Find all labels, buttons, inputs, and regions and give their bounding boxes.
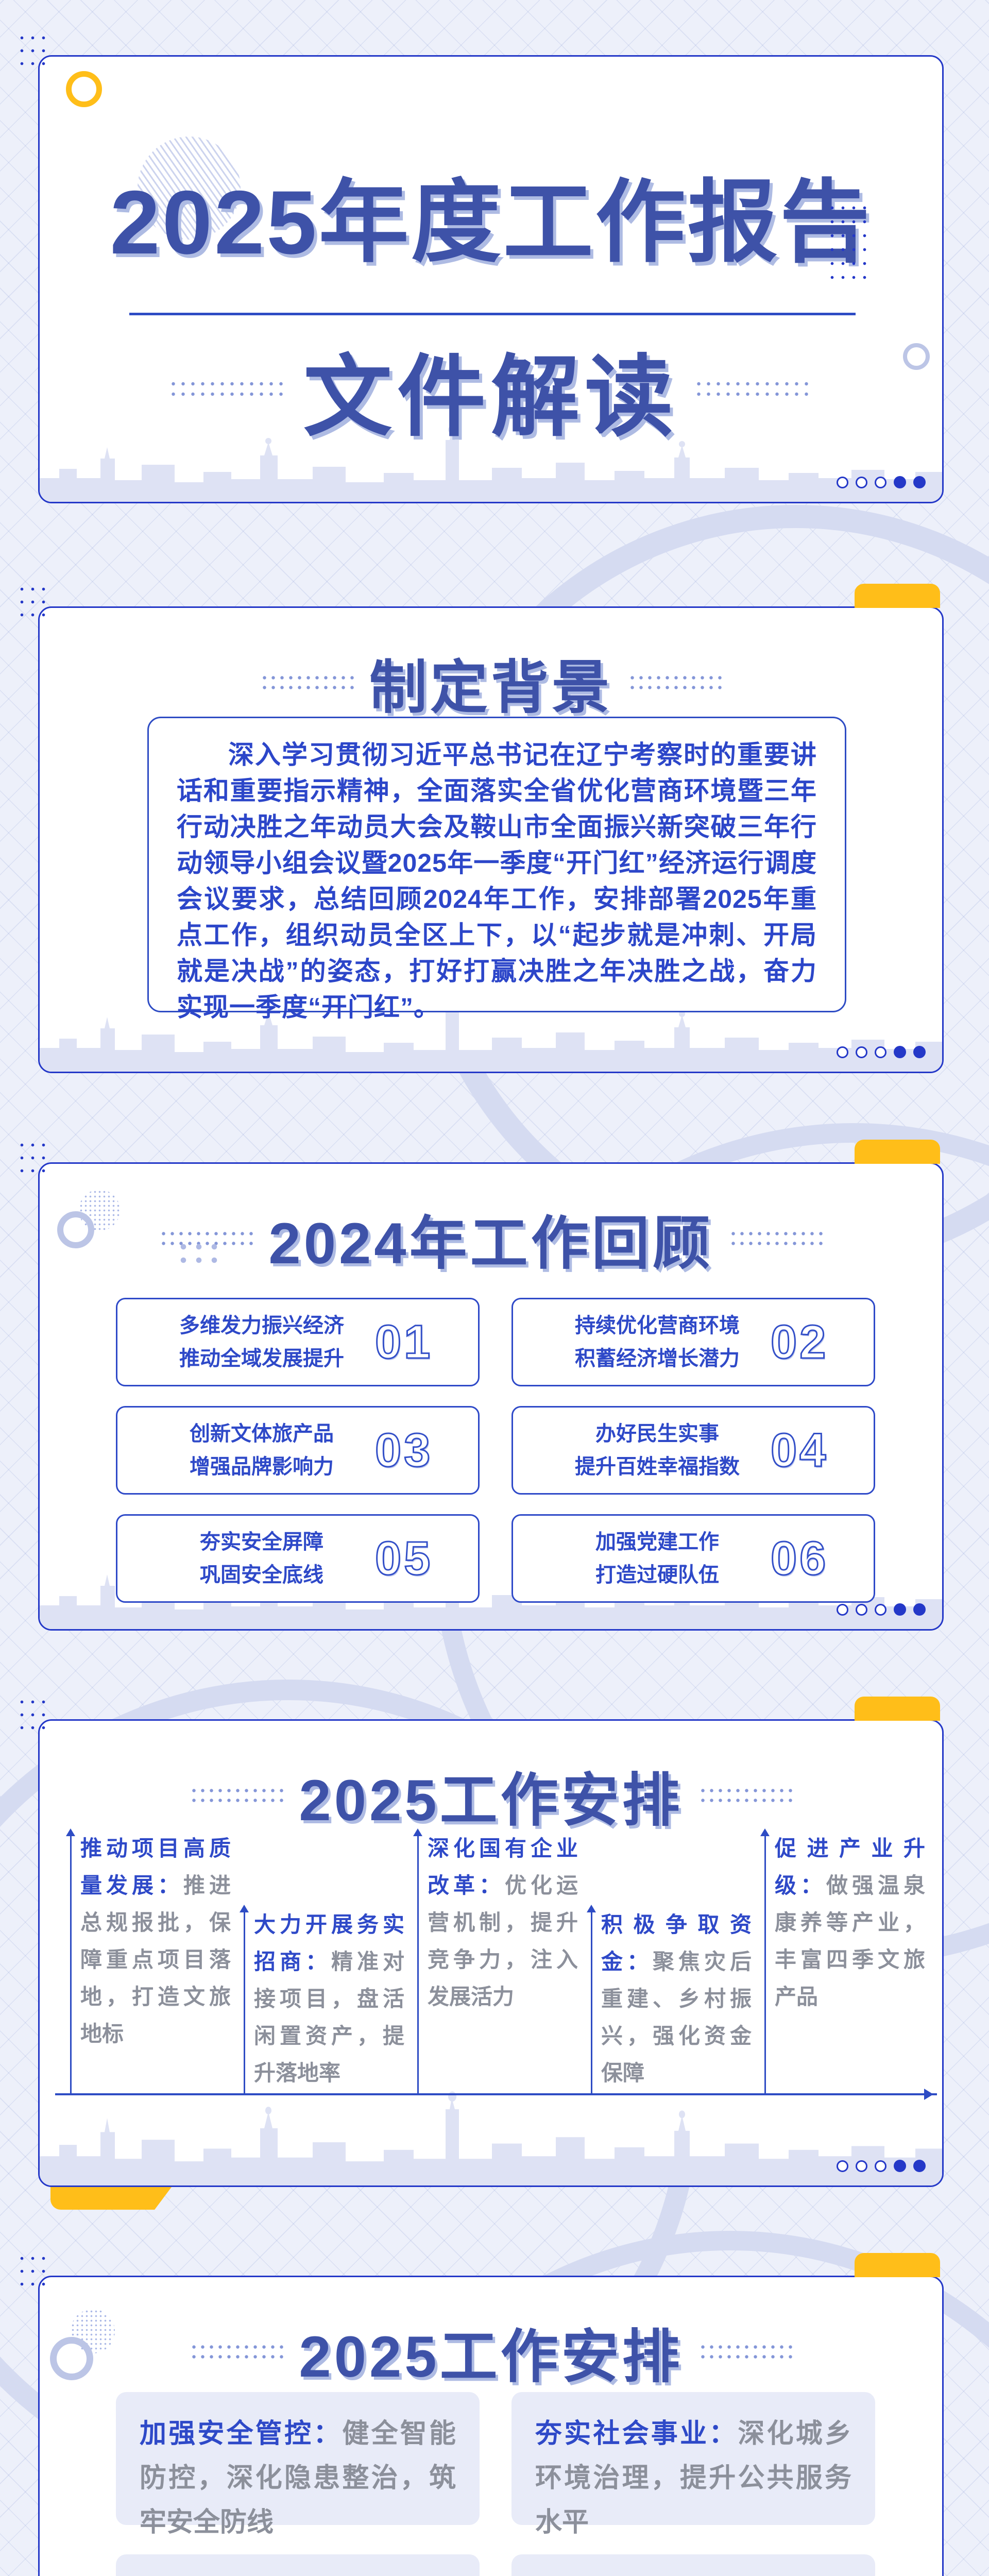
dots-decoration [260,673,354,692]
yellow-tab-decoration [855,1697,940,1721]
review-item: 多维发力振兴经济推动全域发展提升 01 [116,1298,480,1386]
corner-dots-decoration [15,2251,50,2292]
section-title: 2025工作安排 [299,2310,683,2394]
plan-grid: 加强安全管控：健全智能防控，深化隐患整治，筑牢安全防线 夯实社会事业：深化城乡环… [116,2392,875,2576]
dots-decoration [168,379,288,399]
pagination-dots [837,2160,926,2172]
report-poster: 2025年度工作报告 文件解读 制定背景 深入学习贯彻习近平总书记在辽宁考察时的… [0,0,989,2576]
corner-dots-decoration [15,1694,50,1736]
card-2025-plan-timeline: 2025工作安排 推动项目高质量发展：推进总规报批，保障重点项目落地，打造文旅地… [38,1719,944,2187]
background-paragraph: 深入学习贯彻习近平总书记在辽宁考察时的重要讲话和重要指示精神，全面落实全省优化营… [177,737,817,1025]
dots-decoration [826,200,869,281]
yellow-tag-decoration [50,2187,172,2210]
section-title: 2024年工作回顾 [268,1197,713,1280]
plan-card: 夯实社会事业：深化城乡环境治理，提升公共服务水平 [511,2392,875,2525]
plan-card: 抓好从严治党：强化党建引领，压实治党责任，锻造过硬队伍 [511,2554,875,2576]
dots-decoration [628,673,722,692]
pagination-dots [837,1046,926,1058]
plan-item: 推动项目高质量发展：推进总规报批，保障重点项目落地，打造文旅地标 [80,1830,231,2053]
dots-decoration [698,2342,792,2362]
review-item: 创新文体旅产品增强品牌影响力 03 [116,1406,480,1495]
review-item: 办好民生实事提升百姓幸福指数 04 [511,1406,875,1495]
dots-decoration [698,1786,792,1805]
item-number: 03 [375,1423,478,1478]
corner-dots-decoration [15,1138,50,1179]
item-number: 01 [375,1315,478,1369]
item-number: 02 [771,1315,874,1369]
timeline-arrow [591,1908,592,2093]
timeline-arrow [70,1832,72,2093]
page-subtitle: 文件解读 [303,325,678,453]
timeline-arrow [417,1832,419,2093]
timeline-arrow [244,1908,245,2093]
title-underline [129,313,856,315]
pagination-dots [837,1603,926,1616]
item-number: 05 [375,1532,478,1586]
yellow-tab-decoration [855,2253,940,2277]
dots-decoration [190,1786,283,1805]
yellow-tab-decoration [855,584,940,608]
plan-card: 加强安全管控：健全智能防控，深化隐患整治，筑牢安全防线 [116,2392,480,2525]
background-text-box: 深入学习贯彻习近平总书记在辽宁考察时的重要讲话和重要指示精神，全面落实全省优化营… [147,717,846,1012]
card-2025-plan-grid: 2025工作安排 加强安全管控：健全智能防控，深化隐患整治，筑牢安全防线 夯实社… [38,2276,944,2576]
timeline-axis [55,2093,937,2095]
dots-decoration [175,1239,222,1266]
pagination-dots [837,476,926,488]
timeline-arrow [764,1832,766,2093]
review-item: 持续优化营商环境积蓄经济增长潜力 02 [511,1298,875,1386]
plan-item: 积极争取资金：聚焦灾后重建、乡村振兴，强化资金保障 [601,1906,752,2092]
card-cover: 2025年度工作报告 文件解读 [38,55,944,503]
card-2024-review: 2024年工作回顾 多维发力振兴经济推动全域发展提升 01 持续优化营商环境积蓄… [38,1162,944,1631]
section-title: 制定背景 [369,641,612,724]
review-item: 加强党建工作打造过硬队伍 06 [511,1514,875,1603]
item-number: 06 [771,1532,874,1586]
plan-item: 大力开展务实招商：精准对接项目，盘活闲置资产，提升落地率 [254,1906,404,2092]
page-title: 2025年度工作报告 [40,149,942,280]
ring-decoration [66,71,102,107]
skyline-decoration [40,2090,942,2185]
dots-decoration [729,1229,823,1248]
plan-item: 促进产业升级：做强温泉康养等产业，丰富四季文旅产品 [775,1830,925,2015]
corner-dots-decoration [15,582,50,623]
plan-item: 深化国有企业改革：优化运营机制，提升竞争力，注入发展活力 [428,1830,578,2015]
item-number: 04 [771,1423,874,1478]
card-background-section: 制定背景 深入学习贯彻习近平总书记在辽宁考察时的重要讲话和重要指示精神，全面落实… [38,606,944,1073]
review-grid: 多维发力振兴经济推动全域发展提升 01 持续优化营商环境积蓄经济增长潜力 02 … [116,1298,875,1603]
section-title: 2025工作安排 [299,1754,683,1837]
dots-decoration [190,2342,283,2362]
review-item: 夯实安全屏障巩固安全底线 05 [116,1514,480,1603]
yellow-tab-decoration [855,1140,940,1164]
corner-dots-decoration [15,30,50,72]
plan-card: 打造营商环境最优区：优化政务服务，营造稳定公平发展环境 [116,2554,480,2576]
dots-decoration [694,379,813,399]
